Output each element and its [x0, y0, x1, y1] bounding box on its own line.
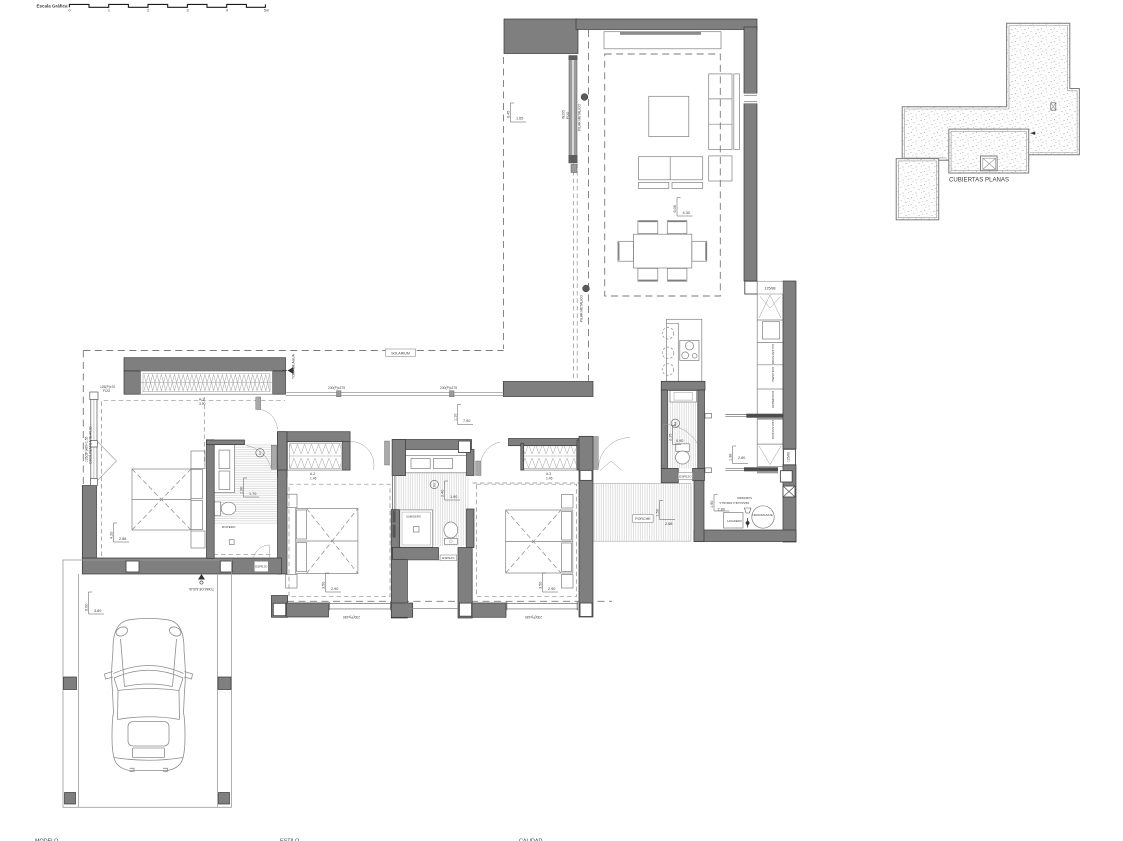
- svg-text:ESCOBERO: ESCOBERO: [771, 391, 775, 409]
- svg-text:1.70: 1.70: [249, 492, 256, 496]
- svg-text:PILAR METALICO: PILAR METALICO: [578, 104, 582, 131]
- svg-text:2.90: 2.90: [548, 587, 555, 591]
- svg-text:3.50: 3.50: [322, 582, 326, 589]
- svg-text:ESPEJO: ESPEJO: [679, 474, 692, 478]
- svg-text:ESPEJO: ESPEJO: [442, 556, 455, 560]
- svg-text:3.80: 3.80: [94, 609, 101, 613]
- svg-text:FIJO: FIJO: [566, 111, 570, 119]
- svg-text:0: 0: [69, 9, 71, 13]
- svg-text:2.40: 2.40: [441, 490, 445, 497]
- svg-text:3.50: 3.50: [539, 582, 543, 589]
- svg-text:SUMIDERO: SUMIDERO: [736, 496, 752, 500]
- svg-text:1.65: 1.65: [516, 117, 523, 121]
- svg-text:ROPERO: ROPERO: [222, 525, 236, 529]
- svg-text:6.05: 6.05: [673, 205, 677, 212]
- svg-text:3.90: 3.90: [199, 402, 206, 406]
- svg-text:125/88: 125/88: [787, 452, 791, 462]
- svg-text:2.80: 2.80: [718, 508, 725, 512]
- svg-text:2.00: 2.00: [240, 487, 244, 494]
- svg-text:1.46: 1.46: [546, 476, 553, 480]
- svg-text:LAVADERO: LAVADERO: [727, 519, 743, 523]
- svg-text:2.15: 2.15: [669, 434, 673, 441]
- svg-text:2.68: 2.68: [665, 522, 672, 526]
- svg-text:6.45: 6.45: [507, 111, 511, 118]
- svg-text:2.80: 2.80: [738, 456, 745, 460]
- svg-text:DESAGUE A PARCELA: DESAGUE A PARCELA: [719, 501, 749, 505]
- svg-text:Escala Gráfica: Escala Gráfica: [37, 3, 69, 8]
- svg-text:TOMA DE AGUA: TOMA DE AGUA: [292, 353, 296, 379]
- svg-text:1.46: 1.46: [310, 476, 317, 480]
- svg-text:230(P)x180: 230(P)x180: [343, 615, 360, 619]
- svg-text:1.90: 1.90: [450, 495, 457, 499]
- svg-text:COLUMNA: COLUMNA: [771, 367, 775, 382]
- svg-text:4.20: 4.20: [110, 532, 114, 539]
- svg-text:1.10: 1.10: [454, 414, 458, 421]
- svg-text:2: 2: [147, 9, 149, 13]
- svg-text:PORCHE: PORCHE: [635, 517, 651, 521]
- svg-text:4: 4: [226, 9, 228, 13]
- svg-text:OSCILOBATIENTE+FIJO: OSCILOBATIENTE+FIJO: [89, 426, 93, 464]
- svg-text:SOLARIUM: SOLARIUM: [391, 351, 410, 355]
- svg-text:1.90: 1.90: [710, 501, 714, 508]
- svg-text:230(P)x275: 230(P)x275: [328, 386, 345, 390]
- svg-text:SUMIDERO: SUMIDERO: [406, 515, 422, 519]
- svg-text:PILAR METALICO: PILAR METALICO: [580, 295, 584, 322]
- svg-text:7.90: 7.90: [463, 419, 470, 423]
- svg-text:1: 1: [108, 9, 110, 13]
- svg-text:FIJO: FIJO: [103, 389, 111, 393]
- svg-text:0.90: 0.90: [676, 439, 683, 443]
- svg-text:1ER ACCESO: 1ER ACCESO: [771, 420, 775, 440]
- svg-text:HIDROMASAJE: HIDROMASAJE: [753, 513, 773, 517]
- svg-text:125/88: 125/88: [765, 287, 776, 291]
- svg-text:2.90: 2.90: [331, 587, 338, 591]
- svg-text:3: 3: [186, 9, 188, 13]
- svg-text:230(P)x180: 230(P)x180: [525, 615, 542, 619]
- svg-text:CUBIERTAS PLANAS: CUBIERTAS PLANAS: [949, 177, 1009, 184]
- svg-text:CALENTADOR: CALENTADOR: [771, 344, 775, 365]
- svg-text:6.00: 6.00: [85, 604, 89, 611]
- svg-text:4.30: 4.30: [683, 211, 690, 215]
- svg-text:IN295: IN295: [562, 110, 566, 119]
- svg-text:TOMA DE AGUA: TOMA DE AGUA: [188, 587, 214, 591]
- svg-text:5m: 5m: [264, 9, 269, 13]
- svg-text:ESPEJO: ESPEJO: [255, 565, 268, 569]
- svg-text:1.50: 1.50: [656, 509, 660, 516]
- svg-text:1.38: 1.38: [729, 454, 733, 461]
- svg-text:230(P)x275: 230(P)x275: [440, 386, 457, 390]
- svg-text:2.88: 2.88: [119, 537, 126, 541]
